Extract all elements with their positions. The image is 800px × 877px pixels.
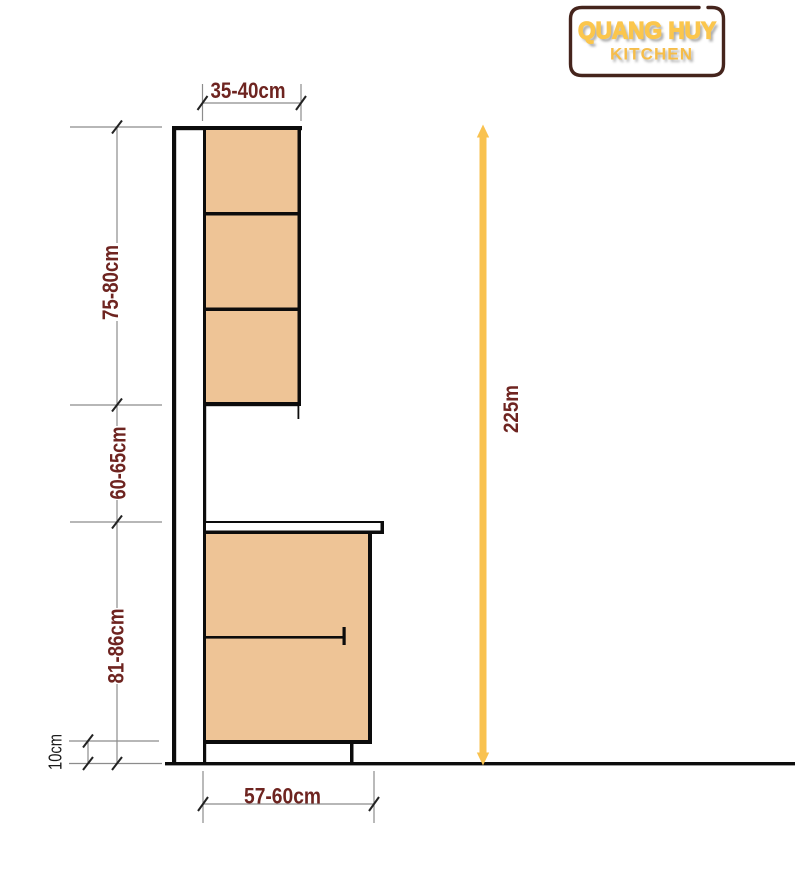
svg-text:35-40cm: 35-40cm [211, 78, 286, 103]
svg-text:75-80cm: 75-80cm [98, 245, 123, 320]
svg-text:10cm: 10cm [46, 734, 66, 770]
svg-text:81-86cm: 81-86cm [104, 609, 129, 684]
svg-text:57-60cm: 57-60cm [244, 784, 321, 809]
svg-text:225m: 225m [500, 385, 523, 433]
svg-text:QUANG HUY: QUANG HUY [578, 18, 716, 45]
svg-text:60-65cm: 60-65cm [106, 427, 131, 500]
